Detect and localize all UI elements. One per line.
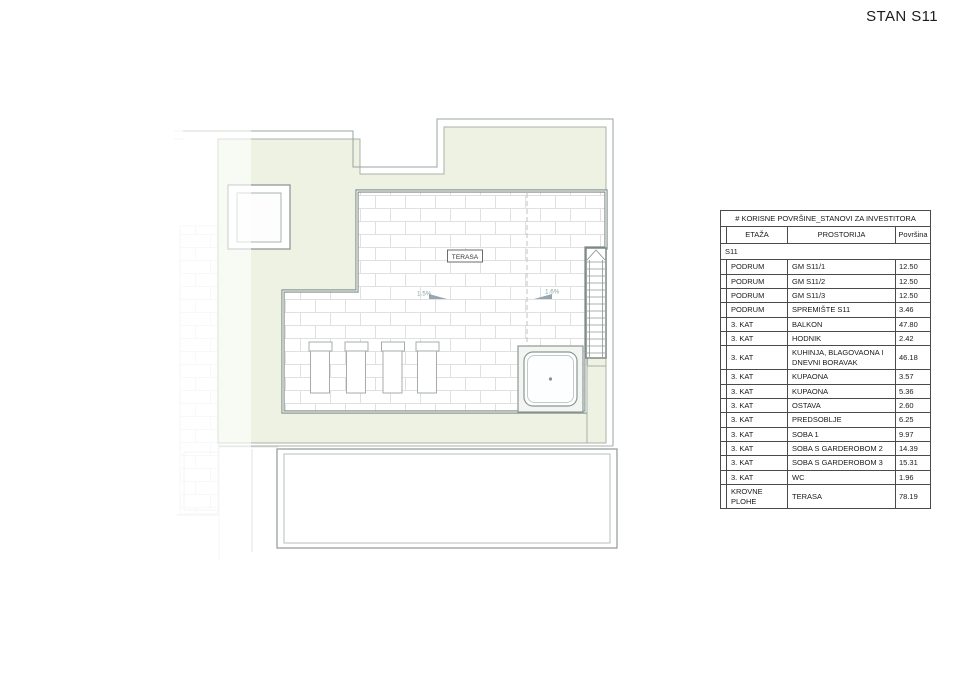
green-strip bbox=[587, 366, 606, 443]
row-cell: SOBA S GARDEROBOM 3 bbox=[788, 456, 896, 470]
row-cell: GM S11/1 bbox=[788, 260, 896, 274]
row-cell: GM S11/3 bbox=[788, 288, 896, 302]
row-cell: TERASA bbox=[788, 485, 896, 509]
row-cell: 3. KAT bbox=[727, 346, 788, 370]
row-cell: PODRUM bbox=[727, 288, 788, 302]
table-row: 3. KATSOBA S GARDEROBOM 214.39 bbox=[721, 442, 931, 456]
row-cell: 9.97 bbox=[896, 427, 931, 441]
row-cell: 3. KAT bbox=[727, 413, 788, 427]
sun-lounger bbox=[309, 342, 332, 393]
row-cell: 78.19 bbox=[896, 485, 931, 509]
row-cell: 3. KAT bbox=[727, 456, 788, 470]
table-title-row: # KORISNE POVRŠINE_STANOVI ZA INVESTITOR… bbox=[721, 211, 931, 227]
table-title: # KORISNE POVRŠINE_STANOVI ZA INVESTITOR… bbox=[721, 211, 931, 227]
staircase bbox=[586, 248, 606, 358]
row-cell: 3. KAT bbox=[727, 427, 788, 441]
table-row: PODRUMGM S11/212.50 bbox=[721, 274, 931, 288]
table-row: 3. KATBALKON47.80 bbox=[721, 317, 931, 331]
row-cell: 3. KAT bbox=[727, 317, 788, 331]
row-cell: KUPAONA bbox=[788, 384, 896, 398]
row-cell: 3. KAT bbox=[727, 398, 788, 412]
table-row: PODRUMGM S11/112.50 bbox=[721, 260, 931, 274]
jacuzzi bbox=[518, 346, 583, 412]
table-row: PODRUMSPREMIŠTE S113.46 bbox=[721, 303, 931, 317]
table-group-row: S11 bbox=[721, 243, 931, 259]
table-row: 3. KATWC1.96 bbox=[721, 470, 931, 484]
row-cell: 5.36 bbox=[896, 384, 931, 398]
header-etaza: ETAŽA bbox=[727, 227, 788, 243]
row-cell: KUPAONA bbox=[788, 370, 896, 384]
table-header-row: ETAŽA PROSTORIJA Površina bbox=[721, 227, 931, 243]
table-row: 3. KATKUPAONA3.57 bbox=[721, 370, 931, 384]
row-cell: WC bbox=[788, 470, 896, 484]
table-row: 3. KATSOBA 19.97 bbox=[721, 427, 931, 441]
sun-lounger bbox=[345, 342, 368, 393]
row-cell: SPREMIŠTE S11 bbox=[788, 303, 896, 317]
table-row: 3. KATPREDSOBLJE6.25 bbox=[721, 413, 931, 427]
terrace-label: TERASA bbox=[448, 250, 483, 262]
row-cell: 46.18 bbox=[896, 346, 931, 370]
table-row: 3. KATKUPAONA5.36 bbox=[721, 384, 931, 398]
page: STAN S11 bbox=[0, 0, 960, 674]
svg-text:1.6%: 1.6% bbox=[545, 289, 560, 296]
row-cell: 3. KAT bbox=[727, 470, 788, 484]
row-cell: PODRUM bbox=[727, 274, 788, 288]
lower-roof bbox=[277, 449, 617, 548]
row-cell: BALKON bbox=[788, 317, 896, 331]
sun-lounger bbox=[382, 342, 405, 393]
row-cell: SOBA S GARDEROBOM 2 bbox=[788, 442, 896, 456]
header-prostorija: PROSTORIJA bbox=[788, 227, 896, 243]
row-cell: 3. KAT bbox=[727, 384, 788, 398]
row-cell: 2.42 bbox=[896, 332, 931, 346]
table-row: 3. KATSOBA S GARDEROBOM 315.31 bbox=[721, 456, 931, 470]
row-cell: GM S11/2 bbox=[788, 274, 896, 288]
area-table-body: PODRUMGM S11/112.50PODRUMGM S11/212.50PO… bbox=[721, 260, 931, 509]
areas-table: # KORISNE POVRŠINE_STANOVI ZA INVESTITOR… bbox=[720, 210, 931, 509]
row-cell: 6.25 bbox=[896, 413, 931, 427]
left-fade-mask bbox=[0, 0, 251, 674]
svg-text:TERASA: TERASA bbox=[452, 254, 479, 261]
table-row: PODRUMGM S11/312.50 bbox=[721, 288, 931, 302]
sun-lounger bbox=[416, 342, 439, 393]
table-row: KROVNE PLOHETERASA78.19 bbox=[721, 485, 931, 509]
row-cell: KUHINJA, BLAGOVAONA I DNEVNI BORAVAK bbox=[788, 346, 896, 370]
row-cell: PODRUM bbox=[727, 260, 788, 274]
group-label: S11 bbox=[721, 243, 931, 259]
table-row: 3. KATKUHINJA, BLAGOVAONA I DNEVNI BORAV… bbox=[721, 346, 931, 370]
row-cell: 3. KAT bbox=[727, 442, 788, 456]
row-cell: SOBA 1 bbox=[788, 427, 896, 441]
row-cell: 12.50 bbox=[896, 260, 931, 274]
row-cell: 3. KAT bbox=[727, 332, 788, 346]
row-cell: 12.50 bbox=[896, 274, 931, 288]
row-cell: 3.46 bbox=[896, 303, 931, 317]
row-cell: 3.57 bbox=[896, 370, 931, 384]
row-cell: 47.80 bbox=[896, 317, 931, 331]
row-cell: PODRUM bbox=[727, 303, 788, 317]
row-cell: 1.96 bbox=[896, 470, 931, 484]
table-row: 3. KATOSTAVA2.60 bbox=[721, 398, 931, 412]
row-cell: 12.50 bbox=[896, 288, 931, 302]
row-cell: 14.39 bbox=[896, 442, 931, 456]
row-cell: OSTAVA bbox=[788, 398, 896, 412]
row-cell: 15.31 bbox=[896, 456, 931, 470]
header-povrsina: Površina bbox=[896, 227, 931, 243]
table-row: 3. KATHODNIK2.42 bbox=[721, 332, 931, 346]
row-cell: 3. KAT bbox=[727, 370, 788, 384]
row-cell: PREDSOBLJE bbox=[788, 413, 896, 427]
row-cell: 2.60 bbox=[896, 398, 931, 412]
row-cell: KROVNE PLOHE bbox=[727, 485, 788, 509]
row-cell: HODNIK bbox=[788, 332, 896, 346]
